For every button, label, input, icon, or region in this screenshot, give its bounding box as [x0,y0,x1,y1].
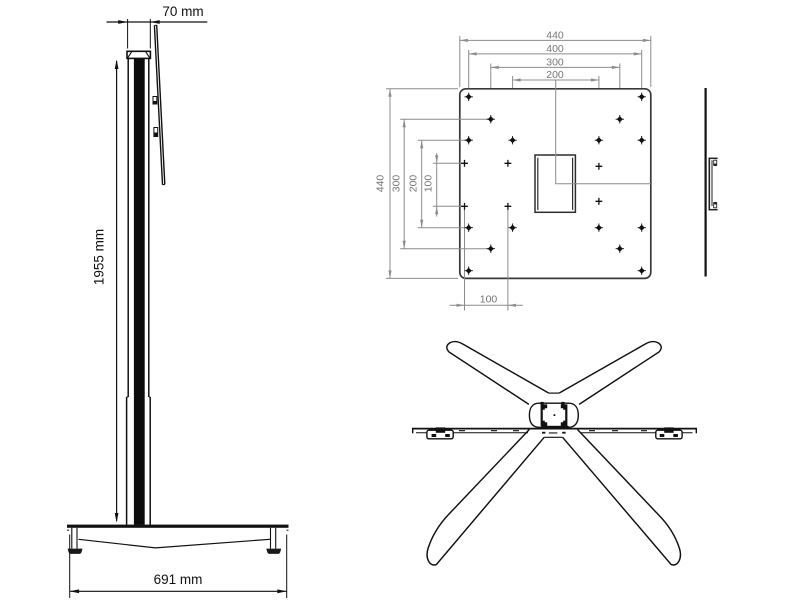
svg-text:300: 300 [546,56,564,68]
svg-text:1955 mm: 1955 mm [92,229,107,285]
svg-text:200: 200 [546,69,564,81]
svg-text:200: 200 [407,175,419,193]
svg-text:440: 440 [546,29,564,41]
svg-text:100: 100 [480,293,498,305]
svg-text:400: 400 [546,43,564,55]
svg-text:300: 300 [391,175,403,193]
svg-text:691 mm: 691 mm [154,572,203,587]
svg-text:100: 100 [423,175,435,193]
svg-text:440: 440 [375,175,387,193]
svg-text:70 mm: 70 mm [162,4,203,19]
